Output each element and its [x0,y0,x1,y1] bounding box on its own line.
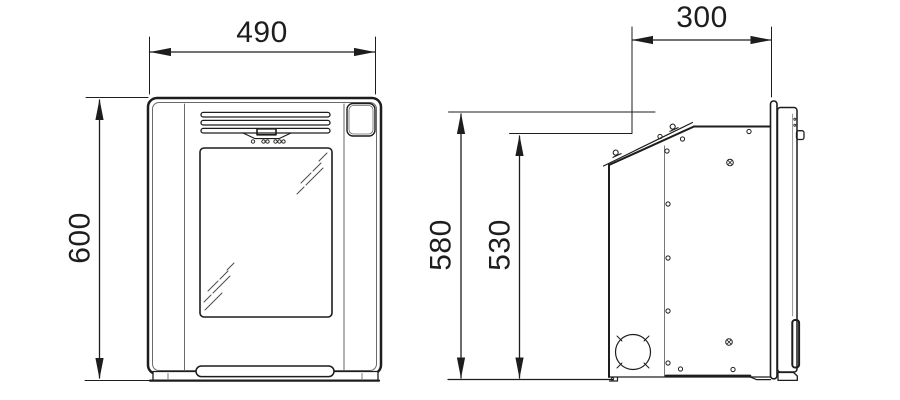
front-body-outline [148,98,381,374]
technical-drawing: 490 600 [0,0,900,400]
dimension-label-side-depth: 300 [676,1,728,34]
arrowhead-left [150,48,171,56]
arrowhead-right [751,36,772,44]
mounting-hook [611,148,622,157]
side-view-dimensions: 300 580 530 [425,1,772,380]
arrowhead-up [515,135,523,156]
arrowhead-up [95,99,103,120]
door-handle [196,366,334,377]
arrowhead-down [95,358,103,379]
screws [658,129,751,371]
fan-vent-circle [616,335,651,370]
screw-cross-head [726,339,733,346]
back-foot-screw [611,378,613,380]
arrowhead-right [354,48,375,56]
arrowhead-down [457,358,465,379]
side-view [604,101,805,381]
dimension-label-side-height-back: 530 [484,219,517,271]
door-foot [778,373,797,381]
dimension-label-front-height: 600 [64,212,97,264]
diagram-canvas: 490 600 [0,0,900,400]
door-profile [778,108,798,373]
dimension-side-height-overall: 580 [425,112,656,379]
arrowhead-left [632,36,653,44]
arrowhead-up [457,113,465,134]
dimension-front-height: 600 [64,98,158,381]
screw-cross-head [727,159,734,166]
dimension-label-front-width: 490 [236,16,288,49]
dimension-label-side-height-overall: 580 [425,219,458,271]
front-frame-edge [771,101,778,379]
dimension-side-depth: 300 [632,1,772,134]
arrowhead-down [515,358,523,379]
dimension-front-width: 490 [150,16,376,94]
front-view [148,98,381,381]
slanted-top-edge [609,127,694,166]
mounting-rail [604,123,693,167]
